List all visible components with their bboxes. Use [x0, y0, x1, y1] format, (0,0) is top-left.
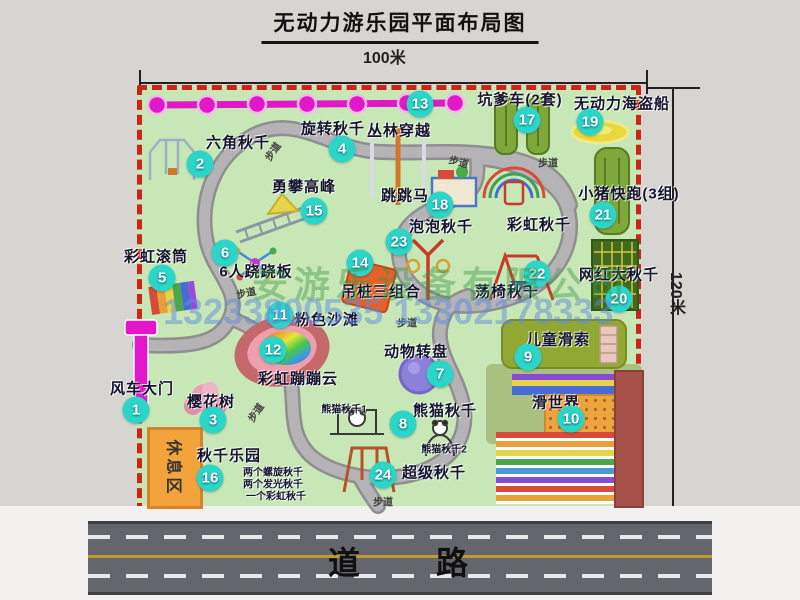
- attraction-label-4: 旋转秋千: [301, 118, 365, 139]
- attraction-label-15: 勇攀高峰: [272, 176, 336, 197]
- marker-9: 9: [515, 344, 542, 371]
- dimension-tick: [646, 70, 648, 94]
- marker-15: 15: [301, 198, 328, 225]
- path-label: 步道: [373, 494, 393, 509]
- marker-19: 19: [577, 109, 604, 136]
- marker-12: 12: [260, 337, 287, 364]
- marker-6: 6: [212, 240, 239, 267]
- road-label: 道 路: [88, 538, 712, 584]
- attraction-label-8: 熊猫秋千: [413, 400, 477, 421]
- attraction-label-17: 坑爹车(2套): [477, 89, 562, 110]
- marker-5: 5: [149, 265, 176, 292]
- marker-21: 21: [590, 202, 617, 229]
- slide-world-rainbow-slide: [496, 432, 616, 504]
- attraction-label-13: 丛林穿越: [367, 120, 431, 141]
- attraction-label-12: 彩虹蹦蹦云: [258, 368, 338, 389]
- marker-18: 18: [427, 192, 454, 219]
- attraction-label-18: 跳跳马: [381, 185, 429, 206]
- marker-16: 16: [197, 465, 224, 492]
- marker-17: 17: [514, 107, 541, 134]
- attraction-label-21: 小猪快跑(3组): [578, 183, 679, 204]
- marker-1: 1: [123, 397, 150, 424]
- marker-23: 23: [386, 229, 413, 256]
- marker-7: 7: [427, 361, 454, 388]
- marker-2: 2: [187, 151, 214, 178]
- attraction-label: 彩虹秋千: [507, 214, 571, 235]
- attraction-sublabel-16-3: 一个彩虹秋千: [246, 488, 306, 503]
- marker-3: 3: [200, 407, 227, 434]
- attraction-label-7: 动物转盘: [384, 341, 448, 362]
- marker-13: 13: [407, 91, 434, 118]
- marker-24: 24: [370, 462, 397, 489]
- page-title: 无动力游乐园平面布局图: [262, 7, 539, 44]
- dimension-line-top: [140, 82, 648, 84]
- marker-10: 10: [558, 406, 585, 433]
- path-label: 步道: [538, 155, 558, 170]
- dimension-height-label: 120米: [663, 272, 687, 315]
- watermark-phone: 13233800535 13302178333: [163, 291, 613, 333]
- attraction-label-5: 彩虹滚筒: [124, 246, 188, 267]
- rest-area: 休息区: [147, 427, 203, 509]
- attraction-label-2: 六角秋千: [206, 132, 270, 153]
- attraction-sublabel-8-1: 熊猫秋千1: [321, 401, 367, 416]
- slide-world-tower: [614, 370, 644, 508]
- rest-area-label: 休息区: [163, 439, 187, 496]
- attraction-label-23: 泡泡秋千: [409, 216, 473, 237]
- park-plan-canvas: 无动力游乐园平面布局图 100米 120米: [0, 0, 800, 600]
- dimension-width-label: 100米: [363, 44, 406, 68]
- road: 道 路: [88, 521, 712, 595]
- marker-4: 4: [329, 136, 356, 163]
- attraction-label-1: 风车大门: [110, 378, 174, 399]
- marker-8: 8: [390, 411, 417, 438]
- attraction-label-16: 秋千乐园: [197, 445, 261, 466]
- attraction-sublabel-8-2: 熊猫秋千2: [421, 441, 467, 456]
- dimension-tick: [646, 87, 700, 89]
- attraction-label-24: 超级秋千: [402, 462, 466, 483]
